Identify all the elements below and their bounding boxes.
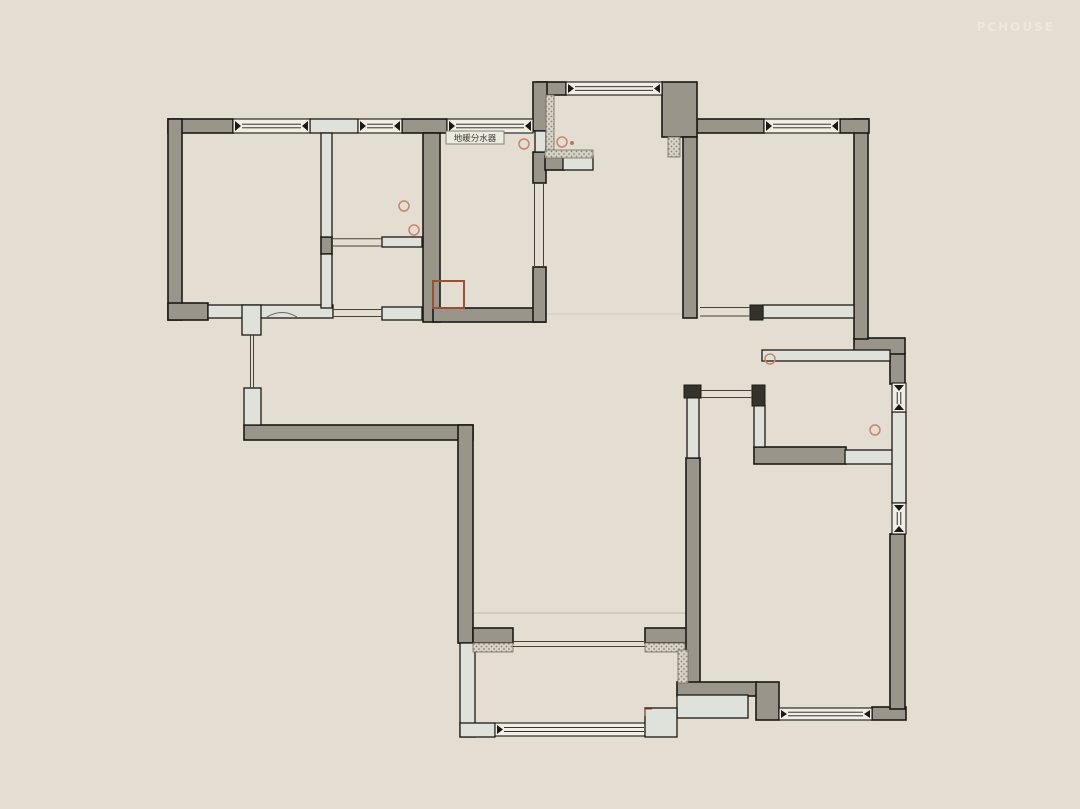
ceiling-beams (473, 314, 686, 613)
partition-segment (762, 350, 890, 361)
wall-segment (533, 152, 546, 183)
structural-walls (168, 82, 906, 720)
partition-segment (687, 397, 699, 458)
ceiling-marker (519, 139, 529, 149)
partition-segment (845, 450, 893, 464)
partition-segment (535, 131, 546, 152)
hatch-band (678, 650, 688, 683)
window (566, 82, 662, 95)
wall-segment (321, 237, 332, 254)
wall-segment (402, 119, 447, 133)
wall-segment (854, 119, 868, 339)
ceiling-marker (409, 225, 419, 235)
wall-segment (473, 628, 513, 643)
hatch-band (545, 150, 593, 158)
wall-segment (662, 82, 697, 137)
wall-segment (533, 267, 546, 322)
ceiling-marker-dot (570, 141, 574, 145)
manifold-label-text: 地暖分水器 (454, 133, 497, 144)
wall-segment (168, 303, 208, 320)
hatch-band (668, 137, 680, 157)
wall-segment (683, 137, 697, 318)
ceiling-marker (870, 425, 880, 435)
entry-door-jamb (242, 305, 261, 335)
partition-segment (892, 412, 906, 503)
partition-segment (382, 237, 422, 247)
wall-segment (840, 119, 869, 133)
window (233, 119, 310, 133)
wall-segment (433, 308, 545, 322)
partition-segment (763, 305, 854, 318)
partition-segment (754, 405, 765, 447)
window (764, 119, 840, 133)
balcony-wall (645, 708, 677, 737)
floorplan-svg: 地暖分水器 PCHOUSE (0, 0, 1080, 809)
partition-segment (321, 254, 332, 308)
wall-segment (697, 119, 764, 133)
ceiling-marker (557, 137, 567, 147)
partition-segment (208, 305, 333, 318)
window (892, 383, 906, 412)
wall-segment (756, 682, 779, 720)
watermark-text: PCHOUSE (977, 20, 1055, 34)
wall-segment (890, 534, 905, 709)
windows (233, 82, 906, 736)
platform-box (677, 695, 748, 718)
window (358, 119, 402, 133)
partition-segment (382, 307, 422, 320)
window (495, 723, 653, 736)
wall-segment (458, 425, 473, 643)
door-stub (684, 385, 701, 398)
window-pier (310, 119, 358, 133)
floorplan-image: 地暖分水器 PCHOUSE (0, 0, 1080, 809)
hatch-band (473, 643, 513, 652)
door-stub (752, 385, 765, 406)
ceiling-markers (399, 137, 880, 435)
hatched-walls (473, 95, 688, 683)
wall-segment (677, 682, 757, 696)
ceiling-marker (399, 201, 409, 211)
partition-segment (321, 133, 332, 237)
wall-segment (890, 353, 905, 384)
window (892, 503, 906, 534)
balcony-wall (460, 723, 495, 737)
door-stub (750, 305, 763, 320)
window (779, 708, 872, 720)
wall-segment (244, 425, 473, 440)
entry-door-leaf-block (244, 388, 261, 425)
wall-segment (168, 119, 182, 320)
hatch-band (546, 95, 554, 155)
manifold-annotation: 地暖分水器 (446, 131, 504, 144)
wall-segment (533, 82, 547, 131)
wall-segment (645, 628, 688, 643)
wall-segment (754, 447, 846, 464)
wall-segment (423, 133, 440, 322)
